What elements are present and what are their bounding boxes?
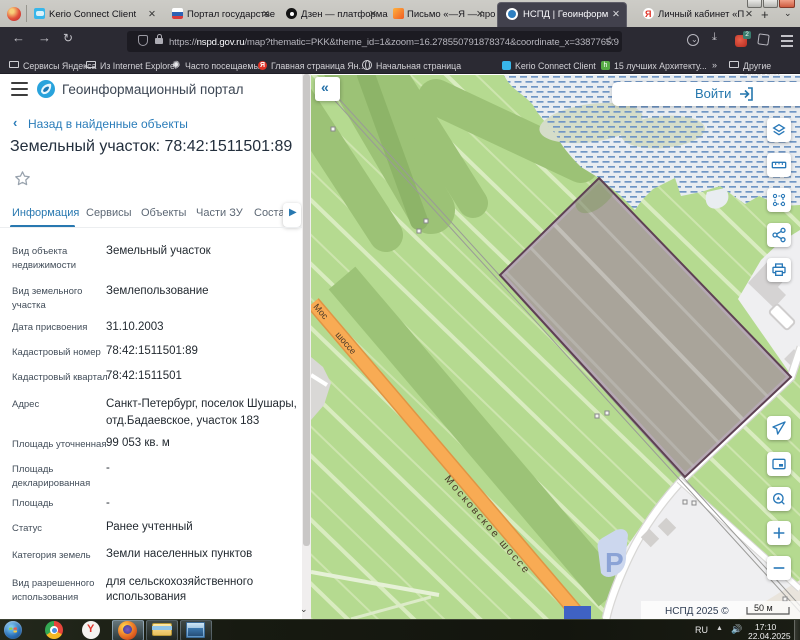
svg-text:НСПД 2025 ©: НСПД 2025 © bbox=[665, 606, 729, 617]
svg-text:P: P bbox=[605, 547, 624, 578]
svg-text:50 м: 50 м bbox=[754, 603, 773, 613]
